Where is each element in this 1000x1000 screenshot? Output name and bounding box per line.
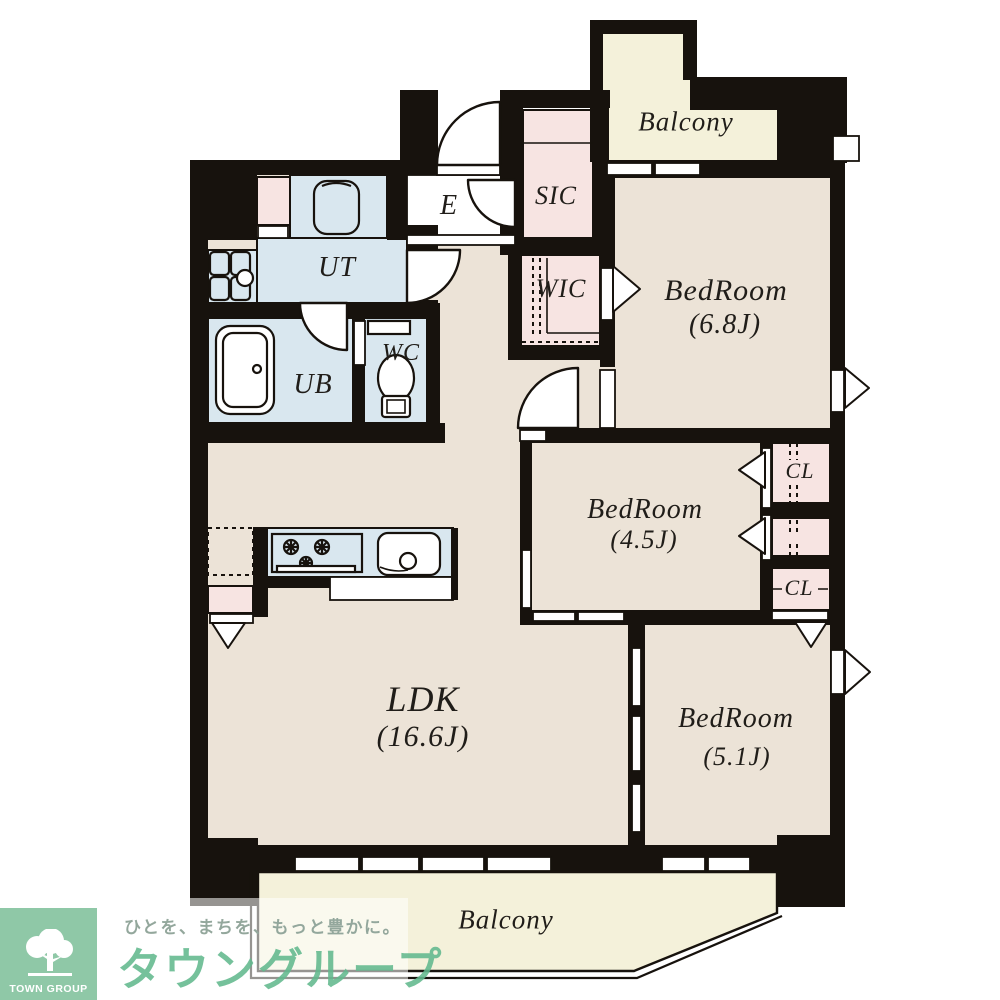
bedroom1-label: BedRoom <box>664 276 788 306</box>
ut-label: UT <box>318 254 356 282</box>
window <box>662 857 705 871</box>
balcony-top-label: Balcony <box>638 109 733 136</box>
logo-text: TOWN GROUP <box>9 983 87 995</box>
wall-window <box>522 550 531 608</box>
window <box>708 857 750 871</box>
washer-pan <box>258 226 288 238</box>
bedroom3-label: BedRoom <box>678 705 794 733</box>
ldk-size-label: (16.6J) <box>377 722 470 752</box>
window <box>295 857 359 871</box>
sliding-door-panel <box>632 784 641 832</box>
wc-door-leaf <box>354 321 365 365</box>
door-threshold <box>210 614 253 623</box>
bedroom3-size-label: (5.1J) <box>703 744 770 770</box>
brand-company-name: タウングループ <box>117 933 443 998</box>
floorplan-drawing <box>0 0 1000 1000</box>
door-opening <box>831 650 844 694</box>
kitchen-sink-icon <box>378 533 440 575</box>
washer-nook <box>290 175 387 240</box>
closet-sliding-door <box>772 611 828 620</box>
wall-opening <box>520 430 546 441</box>
kitchen-ledge <box>330 577 453 600</box>
utility-pink-cabinet <box>257 177 290 225</box>
wic-door <box>601 268 613 320</box>
ldk-pipe-space <box>208 586 253 613</box>
tree-icon <box>18 929 80 981</box>
window <box>422 857 484 871</box>
wall-opening <box>578 612 624 621</box>
window <box>362 857 419 871</box>
window <box>607 163 652 175</box>
sic-label: SIC <box>535 183 577 209</box>
bedroom3-door-triangle <box>845 650 870 694</box>
closet1b-area <box>772 518 830 556</box>
ub-label: UB <box>293 371 332 399</box>
entrance-door-arc <box>437 102 500 165</box>
floorplan-page: Balcony BedRoom (6.8J) WIC SIC E UT UB W… <box>0 0 1000 1000</box>
door-opening <box>831 370 844 412</box>
closet2-label: CL <box>785 577 814 599</box>
sic-area <box>523 110 593 238</box>
bedroom2-size-label: (4.5J) <box>610 527 677 553</box>
entrance-step <box>407 235 515 245</box>
window <box>487 857 551 871</box>
bedroom1-door-triangle <box>845 368 869 408</box>
entrance-label: E <box>440 192 458 220</box>
bathtub-icon <box>216 326 274 414</box>
window <box>655 163 700 175</box>
sliding-door-panel <box>632 716 641 771</box>
bedroom2-label: BedRoom <box>587 496 703 524</box>
sliding-door-panel <box>632 648 641 706</box>
town-group-logo: TOWN GROUP <box>0 908 97 1000</box>
pipe-space-box <box>833 136 859 161</box>
wic-label: WIC <box>536 276 587 302</box>
wall-opening <box>533 612 575 621</box>
bedroom1-door-leaf <box>600 370 615 428</box>
bedroom1-size-label: (6.8J) <box>689 311 761 339</box>
balcony-bottom-label: Balcony <box>458 907 553 934</box>
ldk-label: LDK <box>386 681 459 717</box>
closet1-label: CL <box>786 460 815 482</box>
wc-label: WC <box>382 341 420 365</box>
